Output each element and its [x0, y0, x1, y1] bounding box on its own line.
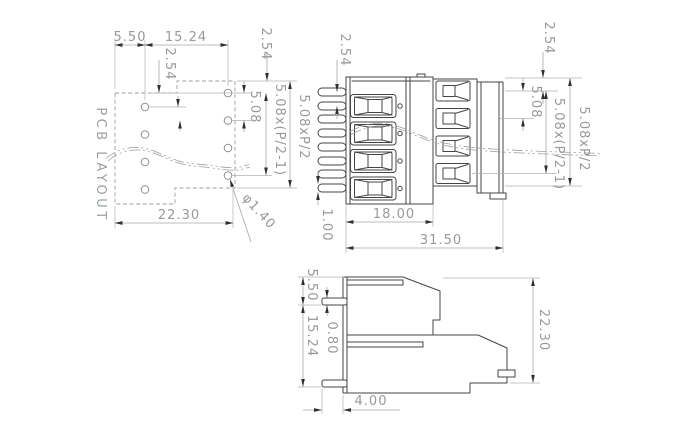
technical-drawing: PCB LAYOUT 5.50 15.24 2.54 5.08 5.08x(P/… [0, 0, 680, 440]
dim-pcb-total-span: 5.08xP/2 [296, 94, 311, 159]
rear-terminal-opening [436, 81, 470, 101]
pin [318, 143, 346, 151]
connector-body [346, 77, 433, 204]
dim-front-depth: 18.00 [373, 207, 415, 222]
connector-front-view: 2.54 1.00 18.00 31.50 2.54 5.08 5.08x(P/… [318, 22, 600, 253]
pin [318, 157, 346, 165]
dim-pcb-row-span: 5.08x(P/2-1) [272, 84, 287, 176]
latch-tab [498, 370, 515, 377]
dim-pcb-top-offset: 2.54 [258, 28, 273, 61]
mounting-hole [141, 186, 149, 194]
mounting-foot [490, 193, 506, 199]
pin [318, 170, 346, 178]
pin [322, 298, 347, 305]
pcb-layout-view: PCB LAYOUT 5.50 15.24 2.54 5.08 5.08x(P/… [93, 28, 311, 242]
rear-terminal-opening [436, 109, 470, 129]
pin [318, 115, 346, 123]
screw-hole [398, 186, 402, 190]
dim-hole-diameter: φ1.40 [239, 191, 279, 233]
pcb-outline [115, 81, 235, 204]
dim-front-total-depth: 31.50 [420, 233, 462, 248]
dim-front-total-span: 5.08xP/2 [576, 106, 591, 171]
dim-pcb-span-x: 15.24 [165, 30, 207, 45]
rear-terminal-opening [436, 164, 470, 184]
dim-pcb-pitch: 5.08 [247, 91, 262, 124]
lower-slot [347, 342, 423, 347]
dim-side-top-to-pin: 5.50 [304, 269, 319, 302]
latch-tab [417, 74, 425, 77]
drawing-canvas: PCB LAYOUT 5.50 15.24 2.54 5.08 5.08x(P/… [0, 0, 680, 440]
terminal-opening [351, 177, 403, 200]
pcb-view-title: PCB LAYOUT [93, 107, 108, 222]
mounting-hole [141, 131, 149, 139]
dim-side-pin-thickness: 0.80 [324, 322, 339, 355]
terminal-opening [351, 122, 403, 145]
dim-side-pin-length: 4.00 [355, 394, 388, 409]
upper-slot [347, 280, 403, 285]
dim-pcb-width: 22.30 [158, 208, 200, 223]
dim-pcb-stagger: 2.54 [162, 48, 177, 81]
screw-hole [398, 131, 402, 135]
pin [318, 102, 346, 110]
rear-terminal-opening [436, 136, 470, 156]
dim-front-pitch: 5.08 [528, 86, 543, 119]
pin [318, 129, 346, 137]
dim-side-pin-spacing: 15.24 [304, 315, 319, 357]
connector-side-view: 5.50 15.24 0.80 4.00 22.30 [298, 269, 551, 414]
pin [318, 88, 346, 96]
mounting-hole [141, 103, 149, 111]
dim-front-pin-pitch: 2.54 [337, 34, 352, 67]
terminal-opening [351, 150, 403, 173]
screw-hole [398, 104, 402, 108]
dim-front-pin-size: 1.00 [319, 209, 334, 242]
pin [318, 184, 346, 192]
pin [322, 380, 347, 387]
screw-hole [398, 159, 402, 163]
mounting-hole [141, 158, 149, 166]
dim-pcb-offset-x: 5.50 [114, 30, 147, 45]
mounting-hole [224, 172, 232, 180]
mounting-hole [224, 144, 232, 152]
dim-front-row-span: 5.08x(P/2-1) [551, 98, 566, 190]
dim-front-top-offset: 2.54 [541, 22, 556, 55]
terminal-opening [351, 95, 403, 118]
mounting-hole [224, 117, 232, 125]
dim-side-height: 22.30 [536, 309, 551, 351]
